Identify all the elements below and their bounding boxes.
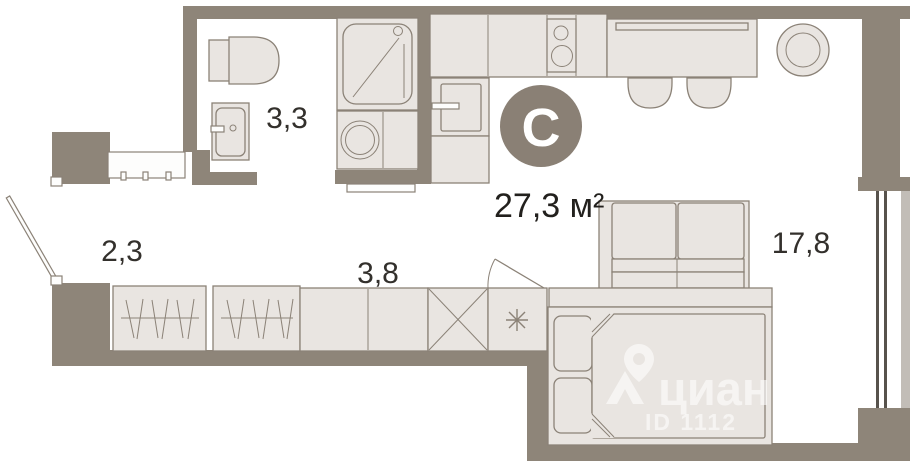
sofa [599, 201, 749, 290]
wall-corridor-bottom [52, 350, 548, 366]
toilet-tank [209, 40, 231, 81]
bathroom-area-label: 3,3 [266, 102, 308, 135]
room-door-leaf [495, 259, 544, 288]
radiator-tick [166, 172, 171, 180]
radiator [108, 152, 185, 180]
fridge [431, 78, 489, 136]
wall-bath-left [183, 6, 197, 152]
window-glazing-line [876, 191, 879, 408]
bed-pillow [554, 378, 592, 433]
unit-type-letter: С [522, 98, 561, 158]
toilet [209, 37, 279, 84]
wardrobe-hangers [113, 286, 206, 351]
bathroom-door-leaf [347, 184, 415, 192]
round-table [777, 24, 829, 76]
watermark-brand: циан [658, 362, 770, 415]
fridge-handle [432, 103, 459, 109]
dining-table [607, 19, 757, 77]
kitchen-counter [430, 14, 607, 77]
wardrobe-hangers [213, 286, 300, 351]
sofa-back-cushion [678, 203, 744, 259]
wardrobe-area-label: 3,8 [357, 257, 399, 290]
chair [628, 78, 672, 108]
total-area-label: 27,3 м² [494, 187, 604, 225]
toilet-bowl [229, 37, 279, 84]
wall-shower-bottom [335, 170, 419, 184]
wall-window-bottom-stub [858, 408, 910, 444]
radiator-tick [121, 172, 126, 180]
floor-plan: циан ID 1112 С 27,3 м² 3,3 2,3 3,8 17,8 [0, 0, 910, 471]
vent-shaft-box [428, 288, 488, 351]
entrance-door-jamb [51, 276, 62, 285]
wall-right-pylon [862, 19, 900, 183]
window-glazing-line [884, 191, 887, 408]
sink-faucet [211, 126, 224, 132]
unit-type-badge: С [500, 85, 582, 167]
wall-hall-left-top [52, 132, 110, 184]
bed-pillow [554, 316, 592, 371]
window-right [876, 191, 910, 408]
hallway-area-label: 2,3 [101, 235, 143, 268]
sofa-seat [612, 259, 744, 272]
entrance-door [6, 177, 62, 285]
wall-bath-kitchen [417, 6, 431, 184]
chair [687, 78, 731, 108]
room-door-arc [488, 259, 495, 289]
table-ledge [616, 23, 748, 30]
fridge-spot-box [488, 288, 547, 351]
entrance-door-leaf [6, 196, 55, 278]
bathroom-sink [211, 103, 249, 160]
watermark-listing-id: ID 1112 [645, 409, 737, 435]
sofa-seat [612, 272, 744, 288]
wall-bath-bottom [208, 172, 257, 185]
washing-machine [337, 111, 418, 169]
room-door [488, 259, 544, 289]
shower [337, 18, 418, 110]
window-outer-band [901, 191, 910, 408]
entrance-door-jamb [51, 177, 62, 186]
sofa-back-cushion [612, 203, 676, 259]
wall-bath-corner [192, 150, 210, 185]
wall-room-left [527, 350, 548, 461]
wall-hall-left-bottom [52, 283, 110, 366]
kitchen-low-cabinet [431, 136, 489, 183]
bathroom-door [347, 184, 415, 192]
bed-headboard-shelf [549, 288, 772, 307]
stove [547, 19, 576, 72]
shower-tray [343, 24, 412, 104]
radiator-tick [143, 172, 148, 180]
corridor-cabinets [300, 288, 428, 351]
living-room-area-label: 17,8 [772, 227, 830, 260]
wall-bottom-main [527, 443, 910, 461]
wall-window-top-stub [858, 177, 910, 191]
snowflake-symbol [506, 309, 528, 331]
